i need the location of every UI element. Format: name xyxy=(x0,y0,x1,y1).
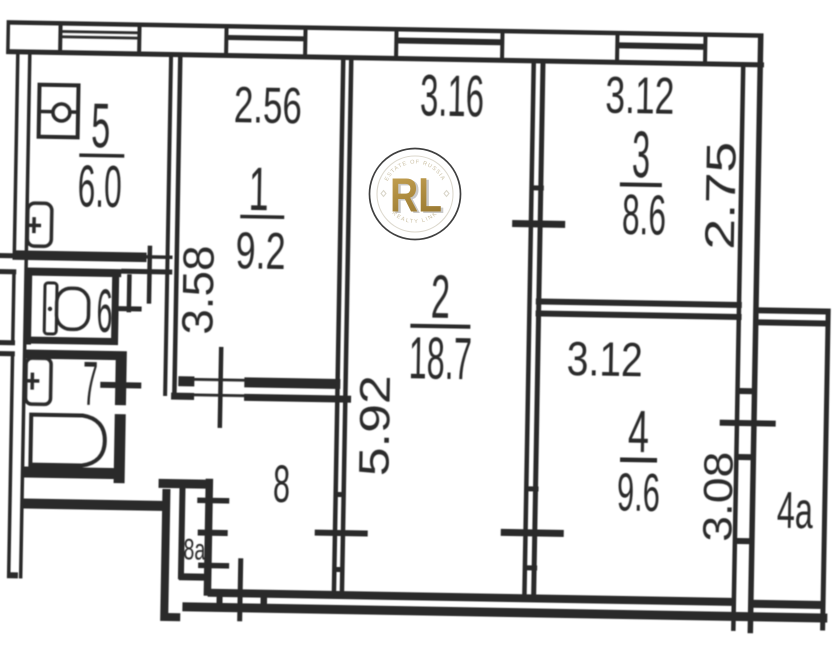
svg-text:18.7: 18.7 xyxy=(408,325,472,392)
svg-text:7: 7 xyxy=(82,350,98,419)
svg-text:9.6: 9.6 xyxy=(616,462,660,523)
svg-text:1: 1 xyxy=(248,155,269,223)
svg-text:5: 5 xyxy=(91,91,111,161)
svg-text:2.75: 2.75 xyxy=(696,141,745,250)
svg-text:6: 6 xyxy=(96,277,113,345)
svg-text:4a: 4a xyxy=(776,482,813,541)
svg-text:3.08: 3.08 xyxy=(694,451,742,542)
svg-text:9.2: 9.2 xyxy=(235,222,286,281)
svg-text:8a: 8a xyxy=(183,533,206,566)
svg-text:3: 3 xyxy=(631,117,650,191)
svg-text:2: 2 xyxy=(430,263,450,331)
svg-text:3.12: 3.12 xyxy=(566,333,643,387)
svg-text:8.6: 8.6 xyxy=(621,183,666,248)
svg-text:3.58: 3.58 xyxy=(173,245,224,335)
svg-text:4: 4 xyxy=(627,399,649,465)
svg-text:8: 8 xyxy=(273,455,291,514)
svg-text:5.92: 5.92 xyxy=(350,375,400,477)
svg-text:2.56: 2.56 xyxy=(233,76,302,134)
svg-text:3.16: 3.16 xyxy=(420,63,485,129)
svg-text:6.0: 6.0 xyxy=(77,153,122,220)
